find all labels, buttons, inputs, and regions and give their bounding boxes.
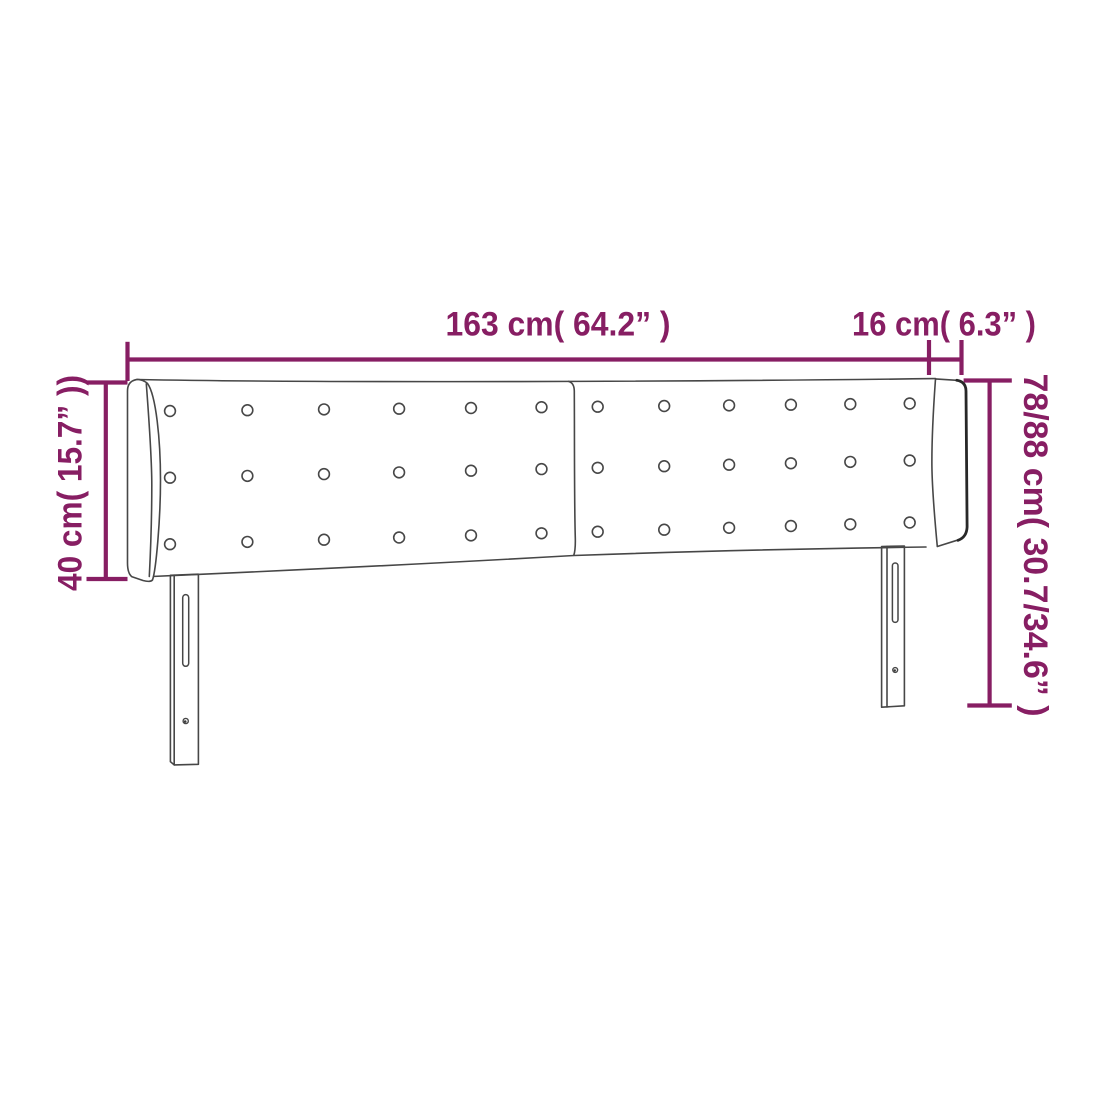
svg-text:163 cm( 64.2” ): 163 cm( 64.2” )	[446, 306, 671, 344]
svg-text:40 cm( 15.7” )): 40 cm( 15.7” ))	[52, 375, 90, 591]
svg-text:16 cm( 6.3” ): 16 cm( 6.3” )	[852, 306, 1036, 344]
svg-text:78/88 cm( 30.7/34.6” ): 78/88 cm( 30.7/34.6” )	[1016, 374, 1054, 717]
